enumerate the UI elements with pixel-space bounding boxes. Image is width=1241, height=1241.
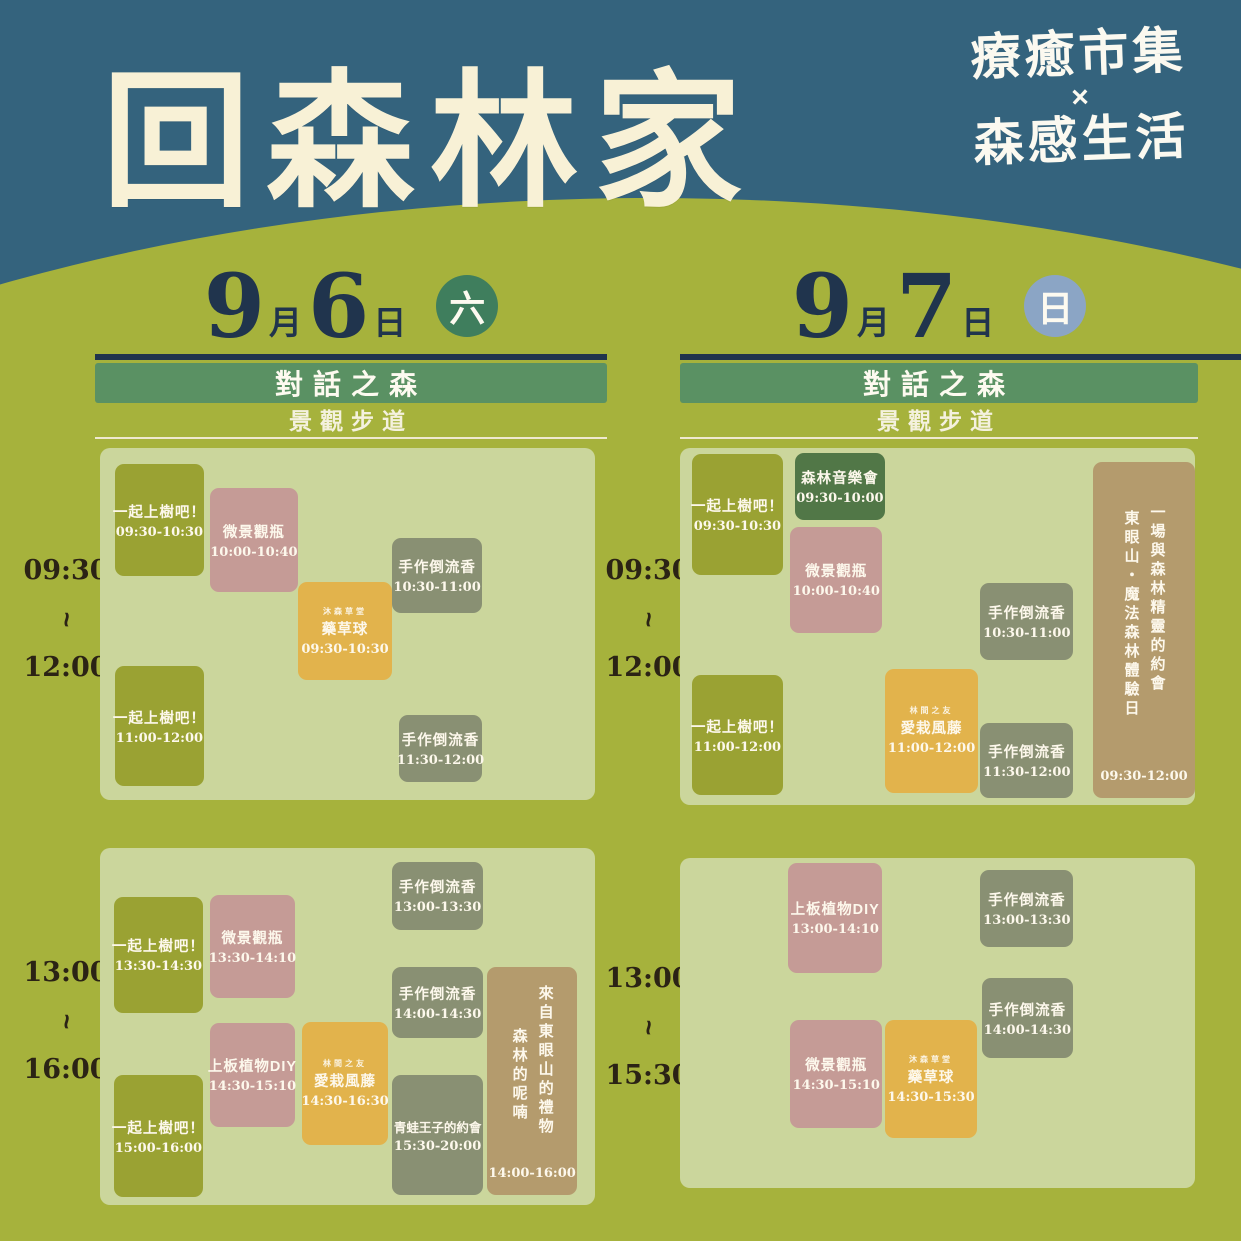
event-time: 09:30-10:00 xyxy=(796,491,883,506)
event-title: 一起上樹吧！ xyxy=(113,501,206,522)
event-card: 一起上樹吧！09:30-10:30 xyxy=(115,464,204,577)
event-time: 11:00-12:00 xyxy=(116,731,203,746)
event-title: 微景觀瓶 xyxy=(221,927,283,948)
event-time: 11:00-12:00 xyxy=(888,741,975,756)
event-time: 09:30-12:00 xyxy=(1100,769,1187,784)
event-card: 手作倒流香14:00-14:30 xyxy=(392,967,483,1038)
location-underline-left xyxy=(95,437,607,439)
time-separator: ~ xyxy=(635,567,662,671)
subtitle-top: 療癒市集 xyxy=(933,21,1225,89)
date-month-unit: 月 xyxy=(269,296,302,344)
event-title: 手作倒流香 xyxy=(988,741,1066,762)
event-card: 手作倒流香11:30-12:00 xyxy=(980,723,1073,798)
event-time: 14:30-15:10 xyxy=(209,1079,296,1094)
event-time: 14:00-16:00 xyxy=(488,1166,575,1181)
event-title: 手作倒流香 xyxy=(399,983,477,1004)
schedule-panel-sep7-afternoon: 上板植物DIY13:00-14:10手作倒流香13:00-13:30手作倒流香1… xyxy=(680,858,1195,1188)
event-card: 微景觀瓶13:30-14:10 xyxy=(210,895,295,998)
event-title: 手作倒流香 xyxy=(989,999,1067,1020)
event-time: 10:30-11:00 xyxy=(393,580,480,595)
event-title: 愛栽風藤 xyxy=(314,1070,376,1091)
event-card: 一起上樹吧！13:30-14:30 xyxy=(114,897,203,1013)
event-title: 微景觀瓶 xyxy=(805,1054,867,1075)
event-time: 14:30-16:30 xyxy=(301,1094,388,1109)
time-separator: ~ xyxy=(53,969,80,1073)
location-label-left: 景觀步道 xyxy=(95,405,607,433)
date-header-sep6: 9 月 6 日 六 xyxy=(95,258,607,354)
event-time: 10:30-11:00 xyxy=(983,626,1070,641)
event-card: 手作倒流香14:00-14:30 xyxy=(982,978,1073,1058)
event-card: 青蛙王子的約會15:30-20:00 xyxy=(392,1075,483,1195)
date-month: 9 xyxy=(792,262,853,350)
event-time: 15:00-16:00 xyxy=(115,1141,202,1156)
event-vendor-tag: 林間之友 xyxy=(323,1058,367,1069)
event-vendor-tag: 林間之友 xyxy=(910,705,954,716)
event-card: 手作倒流香10:30-11:00 xyxy=(392,538,482,614)
subtitle-bottom: 森感生活 xyxy=(936,106,1228,174)
date-month: 9 xyxy=(204,262,265,350)
event-title-vertical: 一場與森林精靈的約會東眼山・魔法森林體驗日 xyxy=(1116,480,1173,719)
event-title: 一起上樹吧！ xyxy=(112,935,205,956)
date-day: 6 xyxy=(308,262,369,350)
event-card: 微景觀瓶10:00-10:40 xyxy=(210,488,298,592)
event-card: 林間之友愛栽風藤14:30-16:30 xyxy=(302,1022,388,1145)
event-title: 一起上樹吧！ xyxy=(691,495,784,516)
event-time: 09:30-10:30 xyxy=(694,519,781,534)
event-title: 森林音樂會 xyxy=(801,467,879,488)
event-card: 上板植物DIY13:00-14:10 xyxy=(788,863,882,973)
event-card: 手作倒流香13:00-13:30 xyxy=(392,862,483,930)
event-title: 微景觀瓶 xyxy=(805,560,867,581)
event-title: 藥草球 xyxy=(908,1066,955,1087)
event-card: 一起上樹吧！11:00-12:00 xyxy=(692,675,783,795)
event-vendor-tag: 沐森草堂 xyxy=(323,606,367,617)
event-time: 11:30-12:00 xyxy=(983,765,1070,780)
event-title: 一起上樹吧！ xyxy=(113,707,206,728)
event-title: 手作倒流香 xyxy=(402,729,480,750)
event-time: 13:00-13:30 xyxy=(983,913,1070,928)
event-time: 13:30-14:10 xyxy=(209,951,296,966)
event-title: 一起上樹吧！ xyxy=(691,716,784,737)
weekday-label: 六 xyxy=(449,280,485,332)
event-card: 沐森草堂藥草球14:30-15:30 xyxy=(885,1020,977,1138)
event-title: 手作倒流香 xyxy=(988,889,1066,910)
poster-subtitle: 療癒市集 × 森感生活 xyxy=(933,21,1228,174)
event-title: 藥草球 xyxy=(322,618,369,639)
event-time: 13:30-14:30 xyxy=(115,959,202,974)
event-card: 手作倒流香13:00-13:30 xyxy=(980,870,1073,947)
header-divider-left xyxy=(95,354,607,360)
event-card: 一起上樹吧！15:00-16:00 xyxy=(114,1075,203,1197)
event-title: 手作倒流香 xyxy=(398,556,476,577)
event-title: 微景觀瓶 xyxy=(223,521,285,542)
event-card: 上板植物DIY14:30-15:10 xyxy=(210,1023,295,1127)
date-day: 7 xyxy=(896,262,957,350)
date-month-unit: 月 xyxy=(857,296,890,344)
event-card: 林間之友愛栽風藤11:00-12:00 xyxy=(885,669,978,793)
date-day-unit: 日 xyxy=(961,296,994,344)
event-time: 10:00-10:40 xyxy=(793,584,880,599)
event-title: 上板植物DIY xyxy=(791,898,880,919)
time-separator: ~ xyxy=(635,975,662,1079)
event-card: 微景觀瓶10:00-10:40 xyxy=(790,527,882,633)
date-day-unit: 日 xyxy=(373,296,406,344)
schedule-panel-sep7-morning: 一起上樹吧！09:30-10:30森林音樂會09:30-10:00微景觀瓶10:… xyxy=(680,448,1195,805)
event-time: 15:30-20:00 xyxy=(394,1139,481,1154)
event-title: 青蛙王子的約會 xyxy=(394,1117,482,1136)
event-title: 愛栽風藤 xyxy=(901,717,963,738)
event-card: 手作倒流香10:30-11:00 xyxy=(980,583,1073,660)
time-separator: ~ xyxy=(53,567,80,671)
event-time: 09:30-10:30 xyxy=(116,525,203,540)
event-time: 14:00-14:30 xyxy=(984,1023,1071,1038)
weekday-label: 日 xyxy=(1037,280,1073,332)
event-title: 一起上樹吧！ xyxy=(112,1117,205,1138)
event-card: 一起上樹吧！11:00-12:00 xyxy=(115,666,204,786)
schedule-panel-sep6-afternoon: 手作倒流香13:00-13:30一起上樹吧！13:30-14:30微景觀瓶13:… xyxy=(100,848,595,1205)
event-card: 森林音樂會09:30-10:00 xyxy=(795,453,885,520)
event-card: 一場與森林精靈的約會東眼山・魔法森林體驗日09:30-12:00 xyxy=(1093,462,1195,798)
event-title-vertical: 來自東眼山的禮物森林的呢喃 xyxy=(504,985,561,1137)
event-card: 手作倒流香11:30-12:00 xyxy=(399,715,481,782)
date-header-sep7: 9 月 7 日 日 xyxy=(680,258,1198,354)
schedule-panel-sep6-morning: 一起上樹吧！09:30-10:30微景觀瓶10:00-10:40沐森草堂藥草球0… xyxy=(100,448,595,800)
event-card: 微景觀瓶14:30-15:10 xyxy=(790,1020,882,1128)
location-label-right: 景觀步道 xyxy=(680,405,1198,433)
venue-banner-left: 對話之森 xyxy=(95,363,607,403)
event-time: 13:00-13:30 xyxy=(394,900,481,915)
event-title: 上板植物DIY xyxy=(208,1055,297,1076)
event-title: 手作倒流香 xyxy=(988,602,1066,623)
event-time: 14:30-15:30 xyxy=(887,1090,974,1105)
event-time: 13:00-14:10 xyxy=(792,922,879,937)
event-time: 11:00-12:00 xyxy=(694,740,781,755)
weekday-badge-saturday: 六 xyxy=(436,275,498,337)
weekday-badge-sunday: 日 xyxy=(1024,275,1086,337)
event-card: 一起上樹吧！09:30-10:30 xyxy=(692,454,783,575)
event-card: 沐森草堂藥草球09:30-10:30 xyxy=(298,582,392,681)
event-card: 來自東眼山的禮物森林的呢喃14:00-16:00 xyxy=(487,967,577,1195)
header-divider-right xyxy=(680,354,1241,360)
event-time: 10:00-10:40 xyxy=(210,545,297,560)
venue-banner-right: 對話之森 xyxy=(680,363,1198,403)
event-title: 手作倒流香 xyxy=(399,876,477,897)
event-time: 14:00-14:30 xyxy=(394,1007,481,1022)
location-underline-right xyxy=(680,437,1198,439)
event-time: 09:30-10:30 xyxy=(301,642,388,657)
event-time: 14:30-15:10 xyxy=(793,1078,880,1093)
poster-title: 回森林家 xyxy=(70,18,790,238)
event-poster: 回森林家 療癒市集 × 森感生活 9 月 6 日 六 對話之森 景觀步道 9 月… xyxy=(0,0,1241,1241)
event-vendor-tag: 沐森草堂 xyxy=(909,1054,953,1065)
event-time: 11:30-12:00 xyxy=(397,753,484,768)
